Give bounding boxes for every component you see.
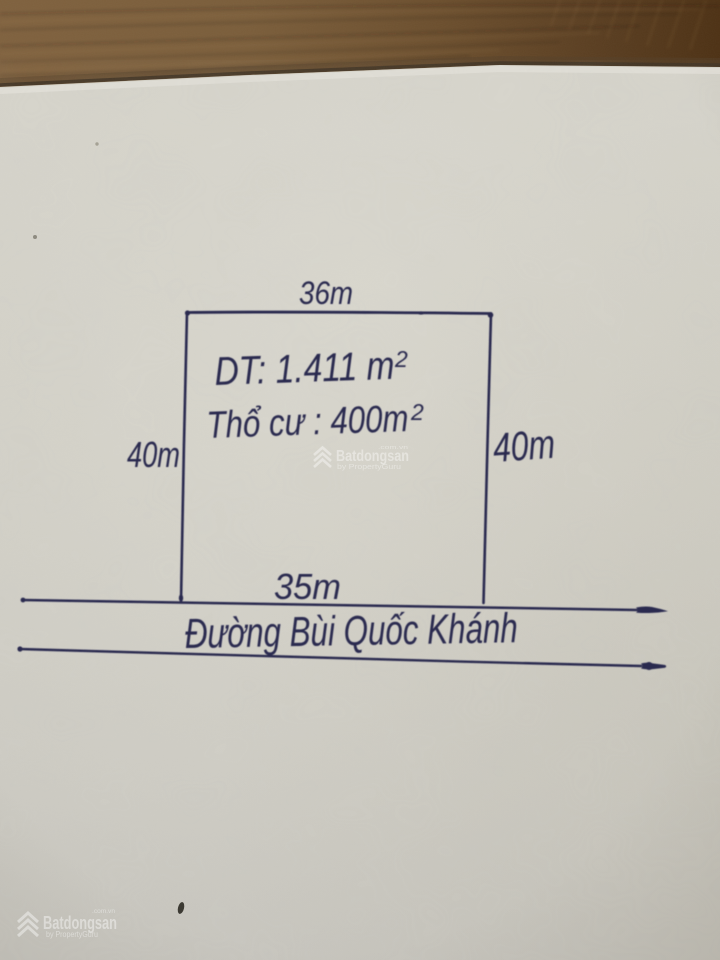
svg-text:2: 2 xyxy=(394,346,408,372)
svg-text:Đường Bùi Quốc Khánh: Đường Bùi Quốc Khánh xyxy=(184,604,518,657)
svg-text:DT: 1.411 m: DT: 1.411 m xyxy=(214,344,395,394)
svg-text:40m: 40m xyxy=(127,434,180,475)
svg-text:.com.vn: .com.vn xyxy=(92,909,115,915)
svg-text:36m: 36m xyxy=(299,275,353,311)
svg-text:2: 2 xyxy=(410,399,424,425)
svg-text:35m: 35m xyxy=(274,566,341,607)
svg-text:40m: 40m xyxy=(491,421,556,471)
svg-text:by PropertyGuru: by PropertyGuru xyxy=(46,930,98,939)
svg-text:.com.vn: .com.vn xyxy=(378,445,408,451)
svg-text:by PropertyGuru: by PropertyGuru xyxy=(337,464,401,471)
svg-text:Thổ cư : 400m: Thổ cư : 400m xyxy=(206,398,409,447)
